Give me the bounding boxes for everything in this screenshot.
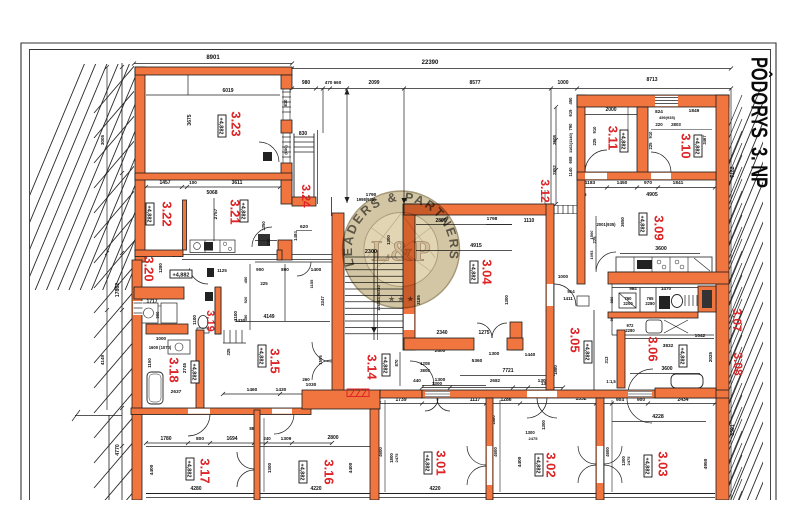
svg-text:4400: 4400 — [149, 464, 155, 475]
svg-text:810: 810 — [283, 99, 288, 107]
svg-text:900: 900 — [155, 311, 160, 319]
svg-text:225: 225 — [592, 138, 597, 146]
svg-text:450: 450 — [568, 97, 573, 105]
svg-text:1798: 1798 — [487, 216, 498, 222]
svg-text:920: 920 — [243, 296, 248, 303]
svg-text:240: 240 — [266, 238, 271, 246]
svg-text:1030: 1030 — [306, 382, 317, 388]
svg-text:830: 830 — [299, 131, 308, 137]
svg-text:1600 (1070): 1600 (1070) — [149, 345, 172, 350]
svg-text:2475: 2475 — [529, 436, 539, 441]
svg-text:800: 800 — [196, 436, 204, 442]
svg-text:3.12: 3.12 — [538, 179, 552, 203]
svg-text:1:1,5: 1:1,5 — [606, 379, 616, 384]
svg-text:3.14: 3.14 — [365, 354, 380, 380]
svg-text:3347: 3347 — [320, 296, 325, 306]
svg-text:3.23: 3.23 — [229, 111, 244, 136]
svg-text:3.04: 3.04 — [480, 259, 495, 285]
svg-text:4228: 4228 — [652, 414, 664, 420]
svg-text:2280: 2280 — [645, 301, 655, 306]
svg-text:1841: 1841 — [673, 180, 684, 186]
svg-text:824: 824 — [655, 109, 663, 114]
svg-text:1000: 1000 — [558, 274, 569, 279]
svg-text:4400: 4400 — [517, 456, 523, 467]
svg-text:100: 100 — [189, 180, 197, 185]
svg-text:3.02: 3.02 — [544, 452, 559, 477]
svg-text:2637: 2637 — [171, 389, 182, 395]
svg-text:1155: 1155 — [309, 279, 314, 288]
svg-text:2200: 2200 — [623, 301, 633, 306]
svg-text:880: 880 — [609, 296, 614, 303]
svg-text:2025: 2025 — [708, 351, 713, 362]
svg-text:4950: 4950 — [703, 458, 709, 469]
svg-text:L&P: L&P — [371, 237, 430, 268]
svg-text:450: 450 — [243, 276, 248, 283]
svg-text:3.03: 3.03 — [656, 451, 671, 476]
svg-text:3832: 3832 — [663, 343, 674, 349]
svg-text:3.01: 3.01 — [434, 450, 449, 475]
svg-text:1275: 1275 — [478, 330, 489, 336]
svg-text:3.24: 3.24 — [299, 184, 313, 208]
svg-text:+4,882: +4,882 — [639, 216, 645, 233]
svg-text:350: 350 — [243, 314, 248, 321]
svg-text:870: 870 — [394, 359, 399, 367]
svg-text:1000: 1000 — [156, 336, 167, 341]
svg-text:1300: 1300 — [525, 430, 535, 435]
svg-text:608: 608 — [568, 156, 573, 164]
svg-text:1300: 1300 — [541, 420, 546, 430]
svg-text:2475: 2475 — [394, 453, 399, 463]
svg-text:3.18: 3.18 — [167, 357, 182, 382]
svg-text:3.17: 3.17 — [198, 458, 213, 483]
svg-text:1042: 1042 — [695, 333, 706, 339]
svg-text:325: 325 — [226, 348, 231, 356]
svg-text:3.09: 3.09 — [652, 215, 667, 240]
svg-text:+4,882: +4,882 — [382, 357, 388, 374]
svg-text:8591: 8591 — [730, 424, 736, 435]
svg-text:7721: 7721 — [502, 368, 513, 374]
svg-text:964: 964 — [629, 286, 637, 291]
svg-text:2745: 2745 — [182, 362, 187, 373]
svg-text:1694: 1694 — [226, 436, 237, 442]
svg-text:3.19: 3.19 — [204, 310, 216, 331]
svg-text:+4,882: +4,882 — [679, 348, 685, 365]
svg-text:4600: 4600 — [493, 447, 498, 457]
svg-text:+4,882: +4,882 — [218, 118, 224, 135]
svg-text:+4,882: +4,882 — [146, 206, 152, 223]
svg-text:3650: 3650 — [620, 217, 625, 227]
svg-text:1440: 1440 — [525, 352, 536, 358]
svg-text:3600: 3600 — [655, 246, 667, 252]
svg-text:1300: 1300 — [432, 381, 443, 386]
svg-text:+4,882: +4,882 — [299, 464, 305, 481]
svg-text:1411: 1411 — [563, 296, 573, 301]
svg-text:3.08: 3.08 — [731, 352, 745, 376]
svg-text:620: 620 — [300, 224, 308, 230]
svg-text:1208: 1208 — [420, 361, 430, 366]
svg-text:470 660: 470 660 — [325, 80, 342, 85]
svg-text:4280: 4280 — [190, 486, 201, 492]
svg-text:220: 220 — [655, 122, 663, 127]
svg-text:4220: 4220 — [310, 486, 321, 492]
svg-text:+4,882: +4,882 — [584, 344, 590, 361]
svg-text:3.20: 3.20 — [142, 256, 157, 281]
svg-text:3.16: 3.16 — [322, 459, 337, 484]
svg-text:3600: 3600 — [661, 366, 672, 372]
svg-text:1163(1140): 1163(1140) — [568, 132, 573, 153]
svg-text:8713: 8713 — [646, 77, 657, 83]
svg-text:+4,882: +4,882 — [424, 455, 430, 472]
svg-text:910: 910 — [648, 131, 653, 139]
svg-text:1500: 1500 — [589, 230, 594, 240]
svg-text:1100: 1100 — [192, 315, 197, 325]
svg-text:514: 514 — [567, 289, 575, 294]
svg-text:3675: 3675 — [187, 114, 193, 125]
svg-text:2475: 2475 — [626, 456, 631, 466]
svg-text:1595: 1595 — [318, 355, 323, 365]
svg-text:7182: 7182 — [730, 166, 736, 177]
svg-text:1300: 1300 — [267, 462, 272, 473]
svg-text:1470: 1470 — [661, 286, 672, 291]
svg-text:1110: 1110 — [524, 218, 535, 224]
svg-text:1780: 1780 — [160, 436, 171, 442]
svg-text:459(935): 459(935) — [659, 115, 676, 120]
svg-text:+4,882: +4,882 — [240, 203, 246, 220]
svg-text:1849: 1849 — [689, 108, 700, 114]
svg-text:1093: 1093 — [589, 250, 594, 260]
svg-text:+4,882: +4,882 — [470, 264, 476, 281]
svg-text:+4,882: +4,882 — [186, 461, 192, 478]
svg-text:+4,882: +4,882 — [694, 138, 700, 155]
svg-text:8577: 8577 — [469, 80, 480, 86]
svg-text:17862: 17862 — [115, 283, 121, 298]
svg-text:3.05: 3.05 — [568, 327, 583, 352]
svg-text:8901: 8901 — [206, 55, 220, 61]
svg-text:225: 225 — [648, 142, 653, 150]
svg-text:PÔDORYS 3. NP: PÔDORYS 3. NP — [746, 57, 774, 188]
svg-text:3.11: 3.11 — [606, 126, 621, 151]
svg-text:970: 970 — [644, 180, 652, 186]
svg-text:1183: 1183 — [585, 180, 596, 186]
svg-text:4149: 4149 — [263, 314, 274, 320]
svg-text:3611: 3611 — [232, 180, 243, 186]
svg-text:240: 240 — [263, 436, 271, 441]
svg-text:1300: 1300 — [489, 351, 500, 357]
svg-text:1430: 1430 — [276, 387, 287, 393]
svg-text:1400: 1400 — [311, 267, 322, 273]
svg-text:619: 619 — [568, 109, 573, 117]
svg-text:2099: 2099 — [368, 80, 379, 86]
svg-text:4400: 4400 — [348, 462, 354, 473]
svg-text:★ ★ ★: ★ ★ ★ — [388, 295, 414, 304]
svg-text:1280: 1280 — [158, 263, 163, 273]
svg-text:4915: 4915 — [470, 243, 482, 249]
svg-text:22390: 22390 — [422, 60, 439, 66]
svg-text:3467: 3467 — [702, 135, 707, 145]
svg-text:2000: 2000 — [605, 107, 616, 113]
svg-text:+4,882: +4,882 — [191, 364, 197, 381]
svg-text:4770: 4770 — [115, 444, 121, 456]
svg-text:3.22: 3.22 — [160, 201, 175, 226]
svg-text:1457: 1457 — [159, 180, 170, 186]
svg-text:+4,882: +4,882 — [644, 458, 650, 475]
svg-text:1350: 1350 — [261, 221, 266, 231]
svg-text:260: 260 — [302, 377, 310, 382]
svg-text:2800: 2800 — [327, 435, 338, 441]
svg-text:4149: 4149 — [100, 354, 105, 365]
svg-text:3.10: 3.10 — [679, 133, 694, 158]
svg-text:1000: 1000 — [557, 80, 568, 86]
svg-text:+4,882: +4,882 — [620, 133, 626, 150]
svg-text:313: 313 — [604, 356, 609, 364]
svg-text:3.07: 3.07 — [730, 308, 744, 332]
svg-text:+4,882: +4,882 — [258, 348, 264, 365]
svg-text:4600: 4600 — [605, 447, 610, 457]
svg-text:2803: 2803 — [671, 122, 681, 127]
svg-text:2340: 2340 — [436, 330, 447, 336]
svg-text:790: 790 — [568, 123, 573, 131]
svg-text:6019: 6019 — [222, 88, 233, 94]
svg-text:(650): (650) — [283, 145, 288, 155]
svg-text:2682: 2682 — [490, 378, 501, 383]
svg-text:+4,882: +4,882 — [173, 272, 190, 278]
svg-text:3808: 3808 — [420, 368, 430, 373]
svg-text:900: 900 — [256, 267, 264, 272]
svg-text:3.06: 3.06 — [646, 336, 661, 361]
svg-text:1140: 1140 — [568, 167, 573, 177]
svg-text:5068: 5068 — [206, 190, 217, 196]
svg-text:+4,882: +4,882 — [535, 457, 541, 474]
svg-text:1150: 1150 — [147, 358, 152, 368]
svg-text:225: 225 — [260, 281, 268, 286]
svg-text:3.15: 3.15 — [268, 348, 283, 373]
svg-text:1125: 1125 — [217, 268, 227, 273]
svg-text:1484: 1484 — [293, 231, 298, 241]
svg-text:2001(935): 2001(935) — [596, 222, 616, 227]
svg-text:1460: 1460 — [247, 387, 258, 393]
svg-text:4220: 4220 — [429, 486, 440, 492]
svg-text:1300: 1300 — [504, 295, 509, 305]
svg-text:2280: 2280 — [625, 328, 635, 333]
svg-text:1100: 1100 — [233, 311, 238, 321]
svg-text:980: 980 — [302, 80, 311, 86]
svg-text:910: 910 — [592, 126, 597, 134]
svg-text:1450: 1450 — [617, 180, 628, 186]
svg-text:3005: 3005 — [100, 134, 105, 145]
svg-text:1309: 1309 — [281, 436, 292, 442]
svg-text:5360: 5360 — [472, 358, 483, 364]
svg-text:440: 440 — [413, 378, 421, 383]
svg-text:4905: 4905 — [646, 192, 658, 198]
